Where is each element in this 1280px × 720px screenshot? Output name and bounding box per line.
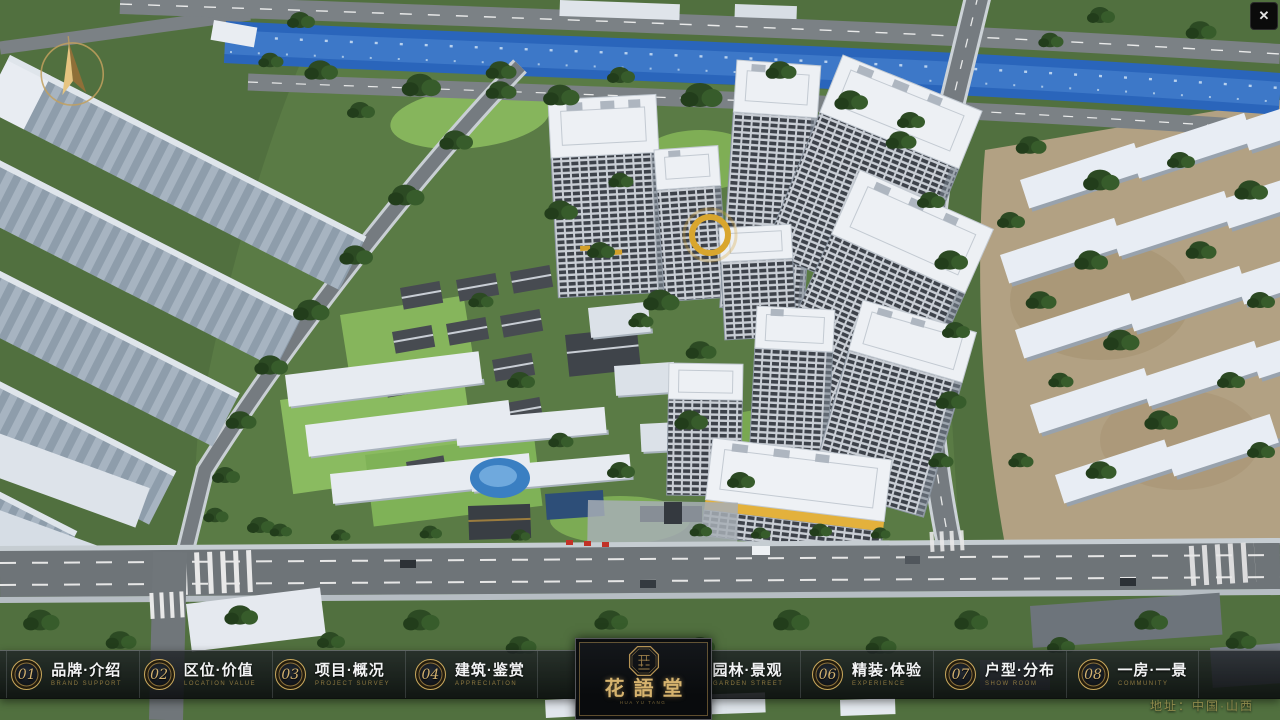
nav-label-en: EXPERIENCE	[852, 681, 906, 687]
nav-label-zh: 建筑·鉴赏	[455, 662, 525, 679]
nav-item-brand-intro[interactable]: 01 品牌·介绍 BRAND SUPPORT	[6, 651, 139, 698]
project-logo-title: 花語堂	[596, 678, 692, 699]
nav-number: 01	[18, 668, 36, 682]
sales-presentation-window: ✕ 01 品牌·介绍 BRAND SUPPORT 02 区位·价值 LOCATI…	[0, 0, 1280, 720]
nav-item-interior-experience[interactable]: 06 精装·体验 EXPERIENCE	[800, 651, 933, 698]
compass-north-arrow-icon	[30, 30, 114, 114]
nav-number: 02	[150, 668, 168, 682]
nav-badge-04: 04	[415, 659, 446, 690]
nav-number: 08	[1084, 668, 1102, 682]
nav-group-left: 01 品牌·介绍 BRAND SUPPORT 02 区位·价值 LOCATION…	[6, 651, 538, 698]
nav-label-zh: 园林·景观	[713, 662, 783, 679]
nav-number: 04	[421, 668, 439, 682]
nav-label-en: SHOW ROOM	[985, 681, 1037, 687]
close-icon: ✕	[1259, 8, 1270, 24]
nav-label-zh: 一房·一景	[1118, 662, 1188, 679]
nav-label-zh: 精装·体验	[852, 662, 922, 679]
nav-item-location-value[interactable]: 02 区位·价值 LOCATION VALUE	[139, 651, 272, 698]
nav-number: 07	[952, 668, 970, 682]
masterplan-render	[0, 0, 1280, 720]
nav-label-zh: 项目·概况	[315, 662, 385, 679]
nav-badge-06: 06	[812, 659, 843, 690]
nav-label-en: COMMUNITY	[1118, 681, 1168, 687]
nav-label-en: PROJECT SURVEY	[315, 681, 390, 687]
nav-badge-07: 07	[945, 659, 976, 690]
nav-label-en: GARDEN STREET	[713, 681, 783, 687]
nav-group-right: 05 园林·景观 GARDEN STREET 06 精装·体验 EXPERIEN…	[667, 651, 1199, 698]
logo-seal-icon	[628, 645, 660, 677]
nav-item-floorplan-distribution[interactable]: 07 户型·分布 SHOW ROOM	[933, 651, 1066, 698]
nav-label-en: BRAND SUPPORT	[51, 681, 122, 687]
nav-badge-02: 02	[144, 659, 175, 690]
project-logo-caption: HUA YU TANG	[620, 701, 667, 706]
nav-number: 03	[281, 668, 299, 682]
nav-badge-08: 08	[1078, 659, 1109, 690]
nav-label-en: APPRECIATION	[455, 681, 517, 687]
project-address: 地址：中国·山西	[1150, 697, 1254, 714]
nav-label-zh: 品牌·介绍	[51, 662, 121, 679]
nav-item-architecture-appreciation[interactable]: 04 建筑·鉴赏 APPRECIATION	[405, 651, 538, 698]
nav-number: 06	[819, 668, 837, 682]
nav-item-project-overview[interactable]: 03 项目·概况 PROJECT SURVEY	[272, 651, 405, 698]
nav-label-en: LOCATION VALUE	[184, 681, 256, 687]
project-logo-plaque[interactable]: 花語堂 HUA YU TANG	[575, 638, 712, 720]
close-button[interactable]: ✕	[1250, 2, 1278, 30]
nav-label-zh: 区位·价值	[184, 662, 254, 679]
nav-label-zh: 户型·分布	[985, 662, 1055, 679]
nav-badge-01: 01	[11, 659, 42, 690]
nav-badge-03: 03	[275, 659, 306, 690]
nav-item-room-view[interactable]: 08 一房·一景 COMMUNITY	[1066, 651, 1199, 698]
